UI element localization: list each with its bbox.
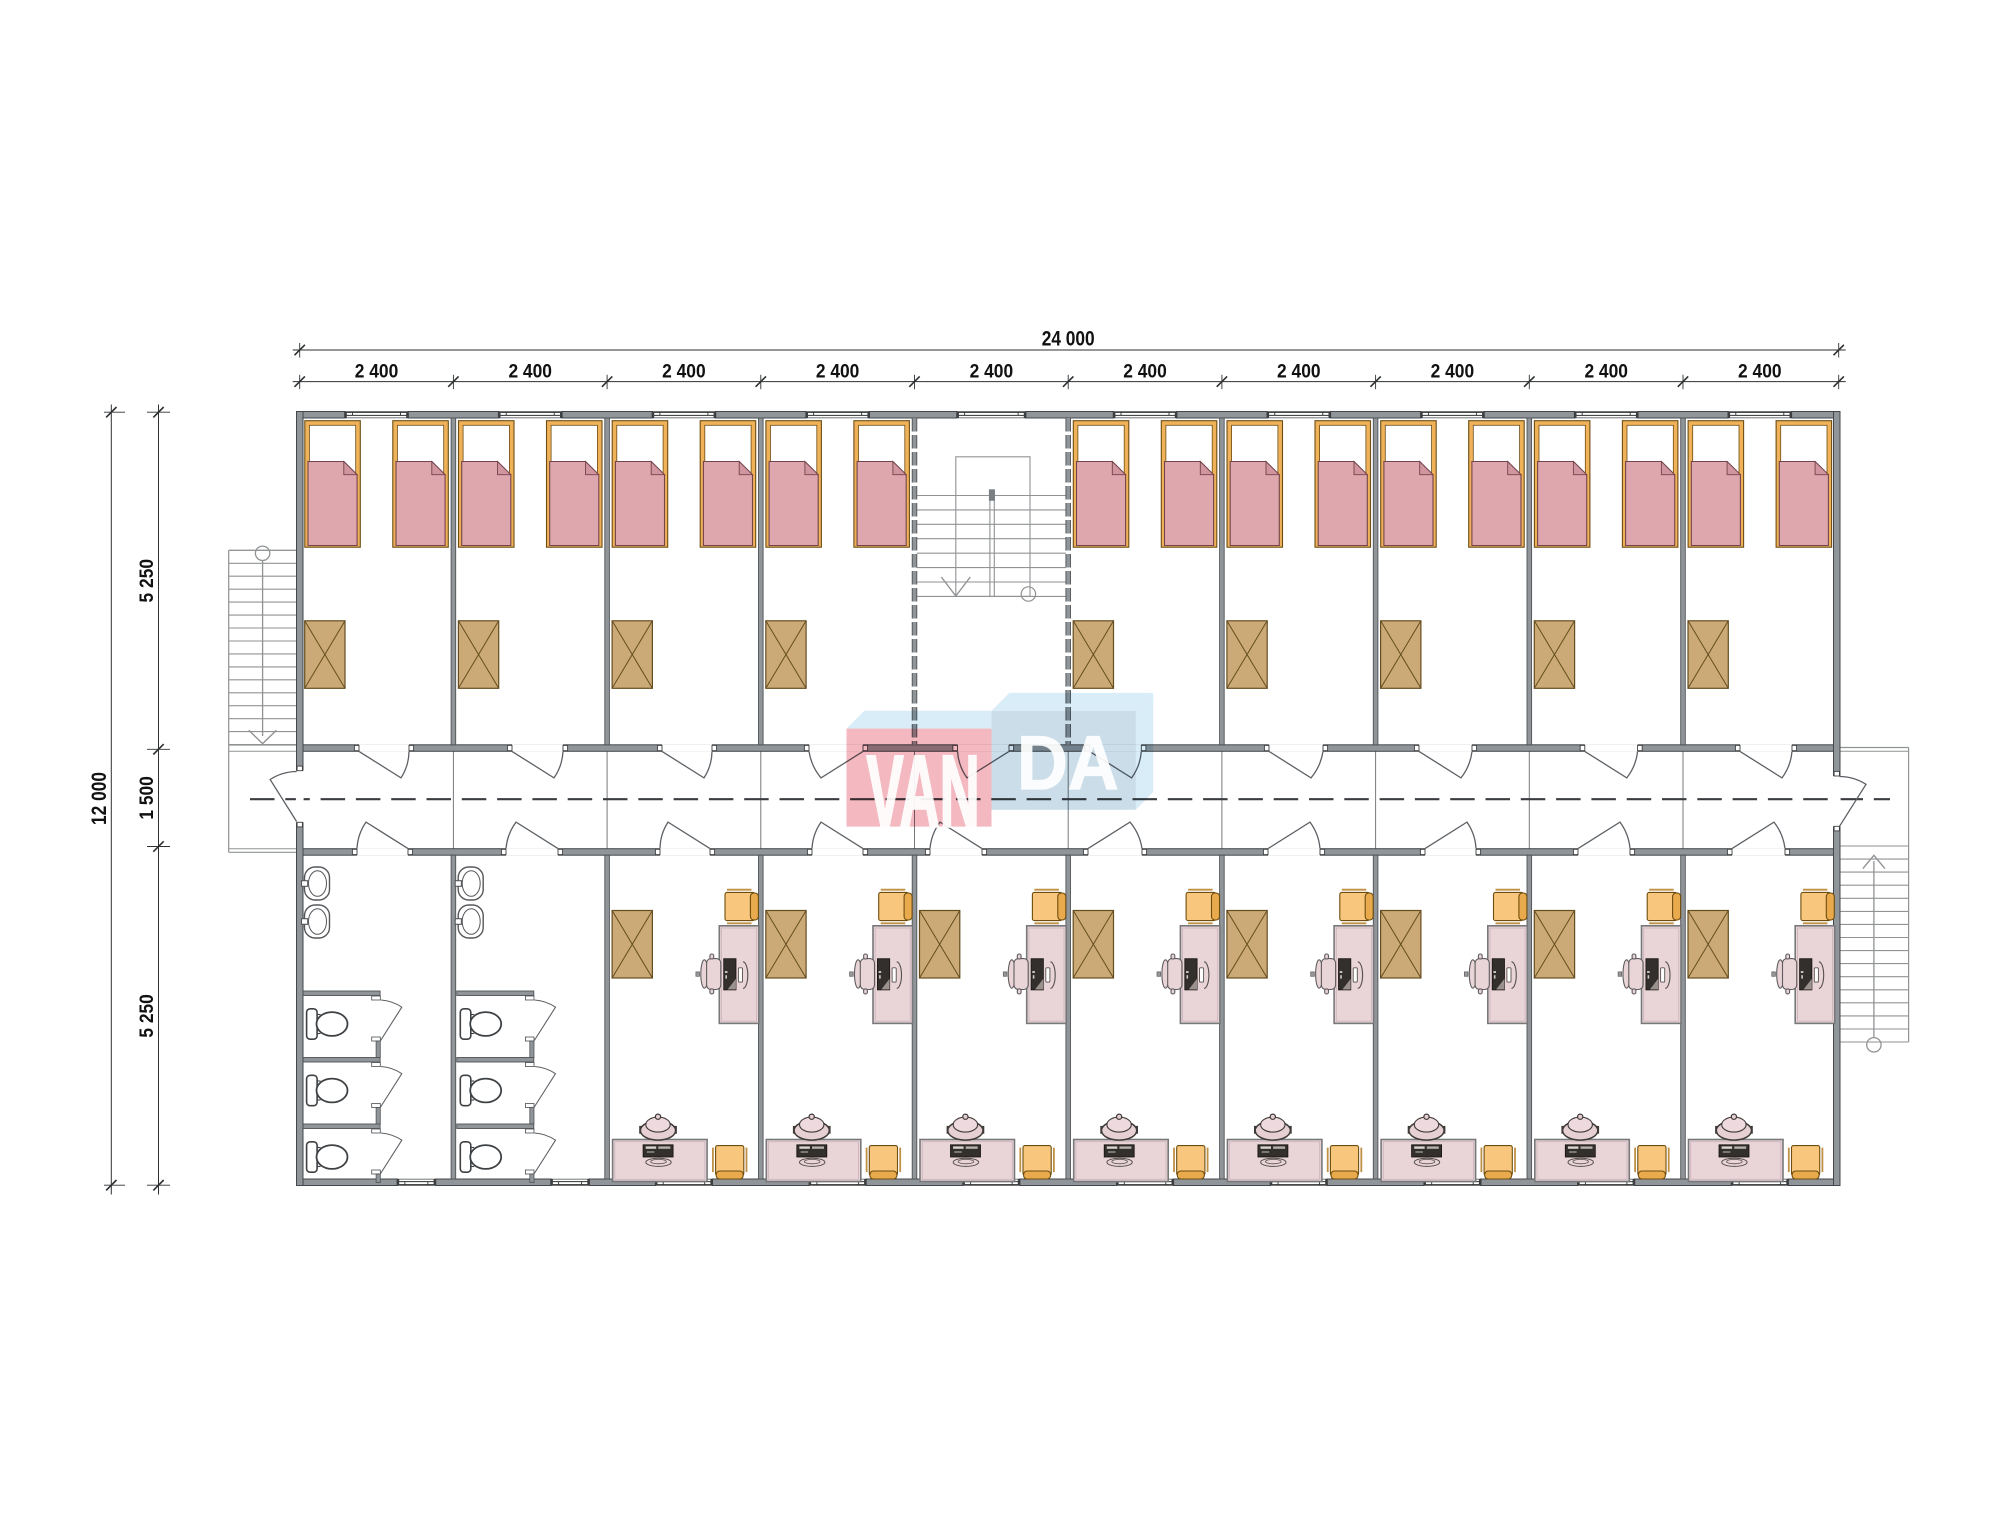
svg-text:2 400: 2 400 xyxy=(1123,361,1167,383)
svg-text:2 400: 2 400 xyxy=(662,361,706,383)
svg-text:2 400: 2 400 xyxy=(816,361,860,383)
svg-text:2 400: 2 400 xyxy=(1584,361,1628,383)
svg-text:2 400: 2 400 xyxy=(1431,361,1475,383)
svg-text:2 400: 2 400 xyxy=(970,361,1014,383)
svg-text:24 000: 24 000 xyxy=(1042,328,1095,351)
svg-text:2 400: 2 400 xyxy=(355,361,399,383)
svg-text:DA: DA xyxy=(1017,719,1119,805)
svg-text:5 250: 5 250 xyxy=(136,559,158,603)
svg-text:1 500: 1 500 xyxy=(136,776,158,820)
svg-text:5 250: 5 250 xyxy=(136,994,158,1038)
svg-text:2 400: 2 400 xyxy=(1277,361,1321,383)
svg-text:12 000: 12 000 xyxy=(88,772,111,825)
svg-text:2 400: 2 400 xyxy=(508,361,552,383)
svg-text:2 400: 2 400 xyxy=(1738,361,1782,383)
svg-text:VAN: VAN xyxy=(867,736,980,849)
